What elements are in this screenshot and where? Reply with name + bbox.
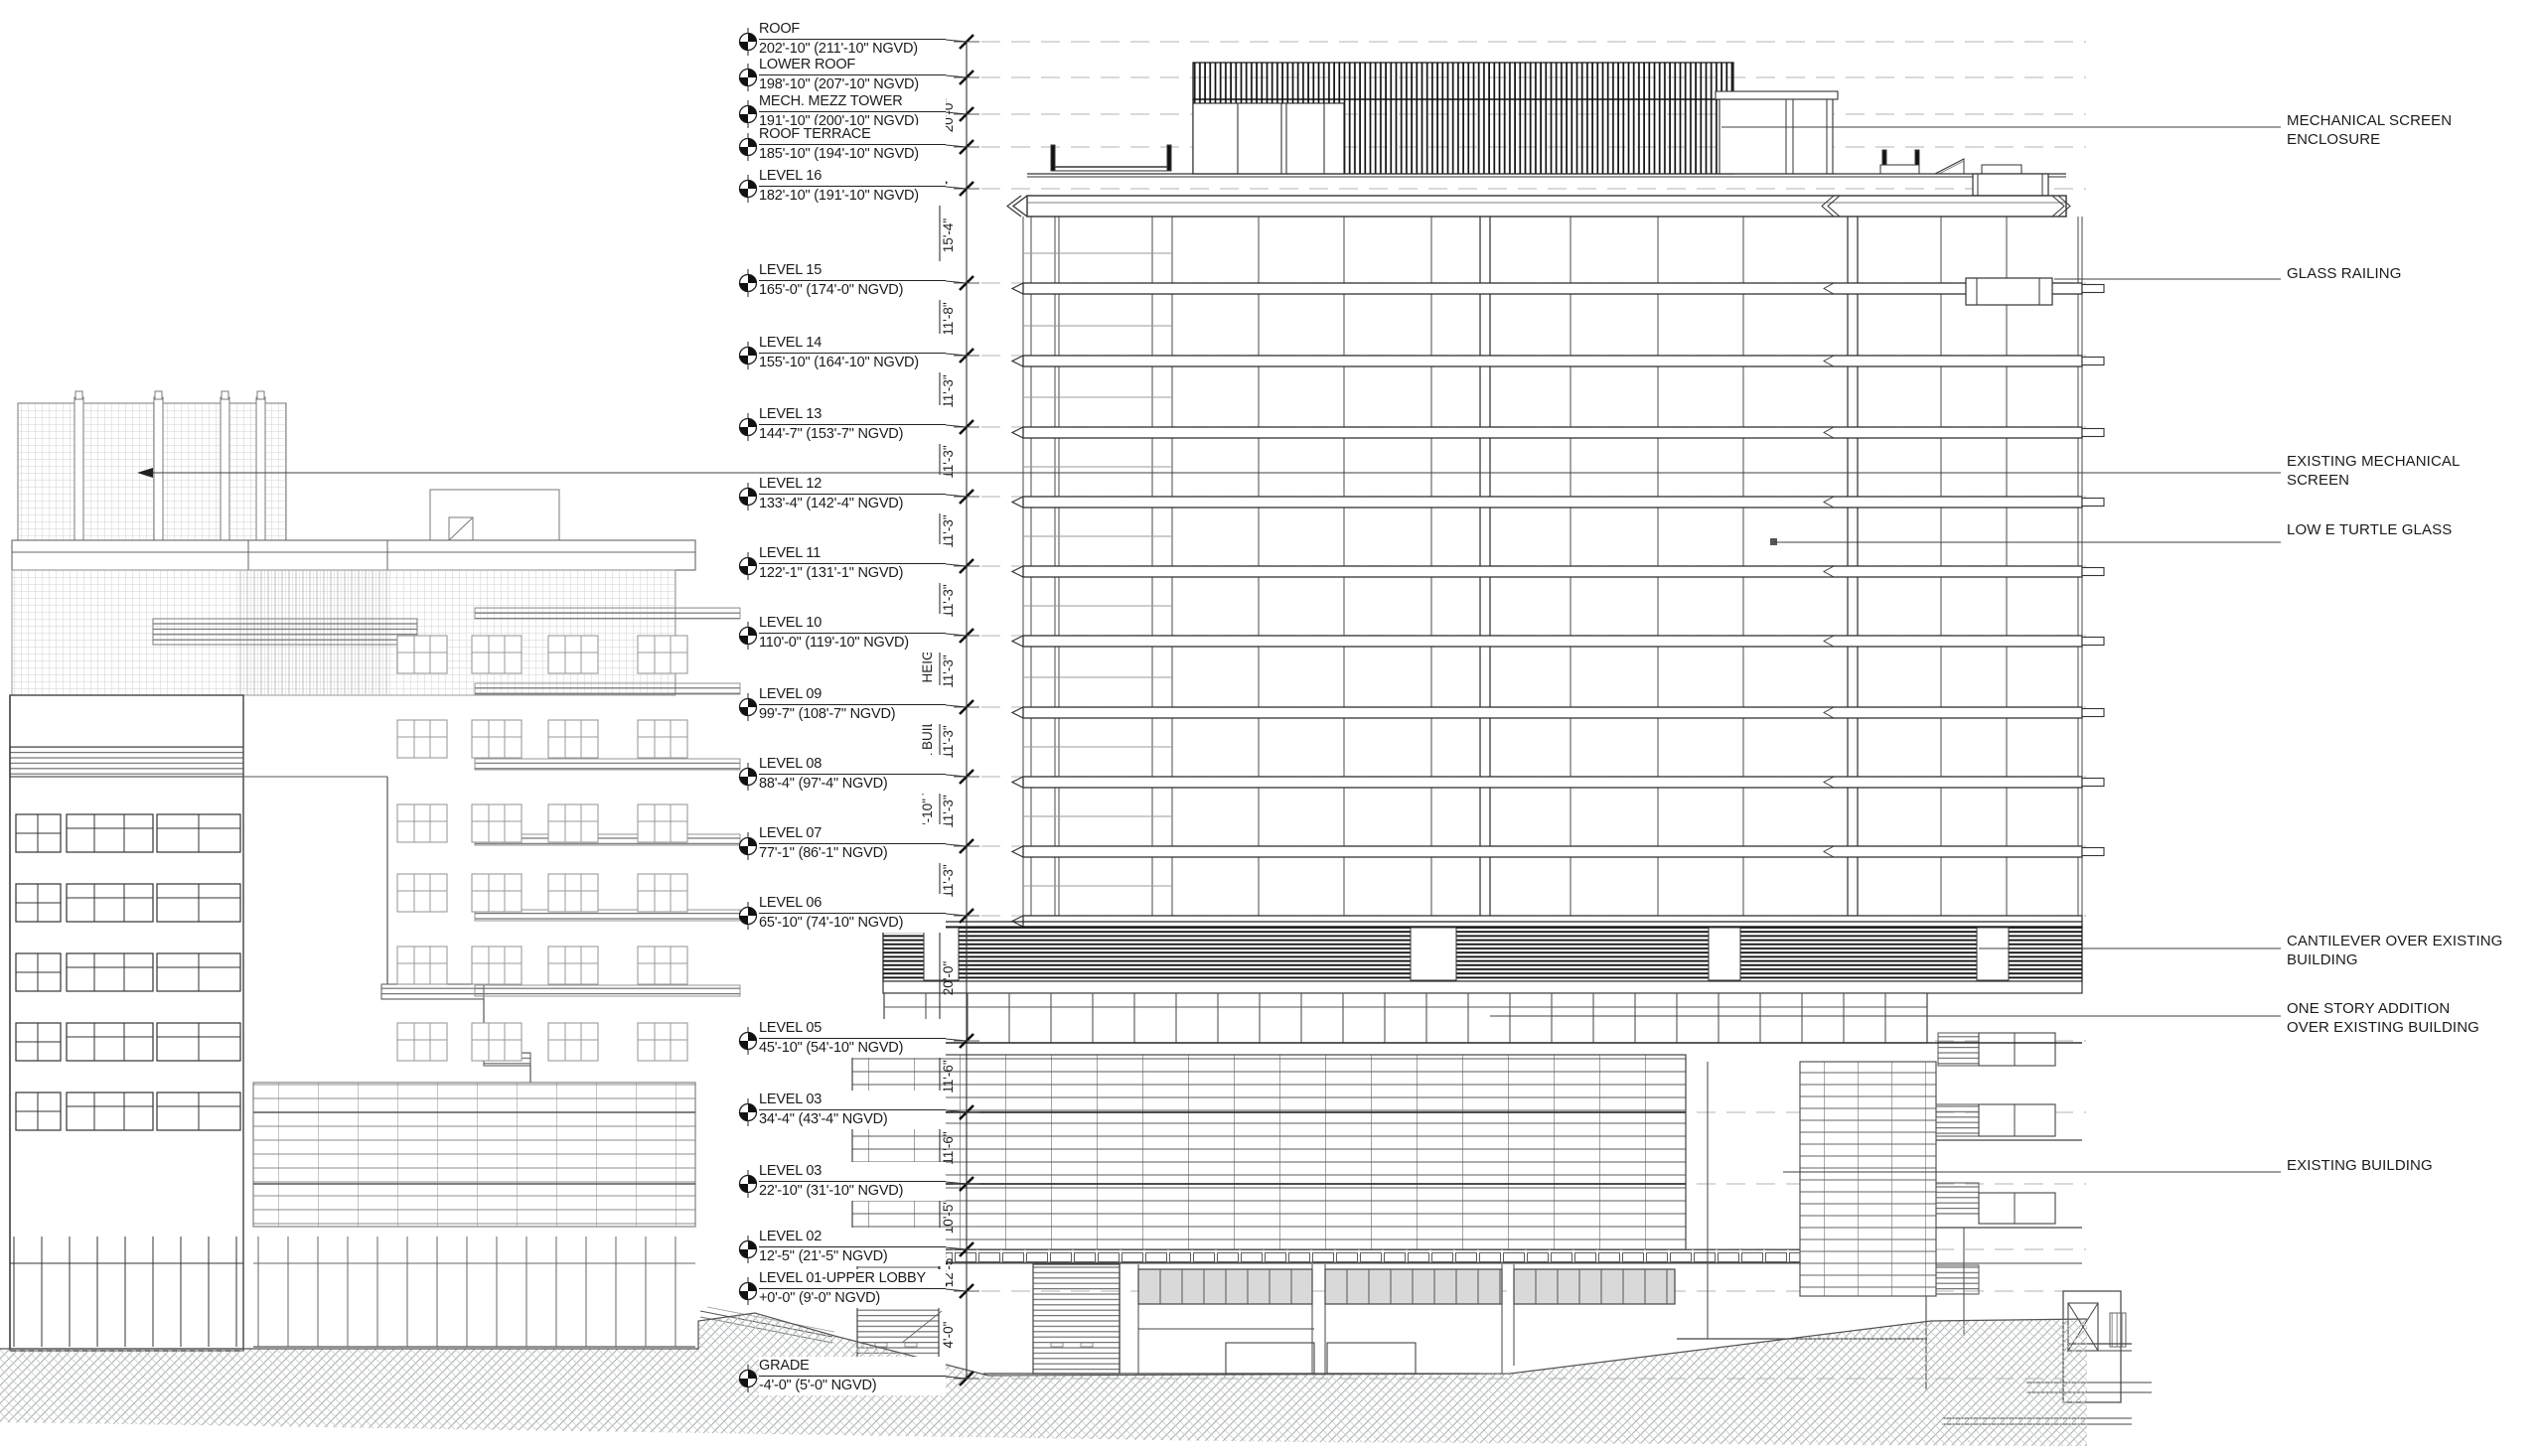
level-elevation: 133'-4" (142'-4" NGVD): [759, 495, 946, 513]
level-label: LEVEL 0212'-5" (21'-5" NGVD): [759, 1228, 946, 1266]
level-label: LEVEL 15165'-0" (174'-0" NGVD): [759, 261, 946, 300]
dimension-text: 11'-3": [941, 864, 956, 898]
level-name: LEVEL 03: [759, 1162, 946, 1182]
level-elevation: 12'-5" (21'-5" NGVD): [759, 1247, 946, 1266]
annotation-line: ENCLOSURE: [2287, 130, 2452, 149]
elevation-drawing: 20'-0"15'-4"11'-8"11'-3"11'-3"11'-3"11'-…: [0, 0, 2543, 1456]
level-label: LOWER ROOF198'-10" (207'-10" NGVD): [759, 56, 946, 94]
level-name: LEVEL 12: [759, 475, 946, 495]
level-elevation: 182'-10" (191'-10" NGVD): [759, 187, 946, 206]
dimension-text: 11'-8": [941, 302, 956, 336]
annotation-line: SCREEN: [2287, 471, 2460, 490]
level-name: ROOF TERRACE: [759, 125, 946, 145]
level-name: LEVEL 03: [759, 1091, 946, 1110]
annotation-label: CANTILEVER OVER EXISTINGBUILDING: [2287, 932, 2502, 969]
level-name: LEVEL 14: [759, 334, 946, 354]
level-label: LEVEL 14155'-10" (164'-10" NGVD): [759, 334, 946, 372]
level-label: LEVEL 0888'-4" (97'-4" NGVD): [759, 755, 946, 794]
level-elevation: 22'-10" (31'-10" NGVD): [759, 1182, 946, 1201]
level-elevation: 122'-1" (131'-1" NGVD): [759, 564, 946, 583]
level-label: LEVEL 16182'-10" (191'-10" NGVD): [759, 167, 946, 206]
dimension-text: 11'-3": [941, 795, 956, 828]
level-name: GRADE: [759, 1357, 946, 1377]
dimension-text: 20'-0": [941, 961, 956, 996]
level-name: LEVEL 02: [759, 1228, 946, 1247]
existing-building-left-drawing: [10, 391, 740, 1351]
annotation-line: EXISTING MECHANICAL: [2287, 452, 2460, 471]
level-name: LEVEL 16: [759, 167, 946, 187]
annotation-line: LOW E TURTLE GLASS: [2287, 520, 2452, 539]
annotation-line: MECHANICAL SCREEN: [2287, 111, 2452, 130]
level-label: ROOF TERRACE185'-10" (194'-10" NGVD): [759, 125, 946, 164]
new-tower-drawing: [1007, 63, 2104, 927]
dimension-text: 11'-6": [941, 1060, 956, 1093]
level-elevation: 65'-10" (74'-10" NGVD): [759, 914, 946, 933]
level-elevation: 185'-10" (194'-10" NGVD): [759, 145, 946, 164]
annotation-label: LOW E TURTLE GLASS: [2287, 520, 2452, 539]
level-name: LEVEL 05: [759, 1019, 946, 1039]
level-name: LEVEL 09: [759, 685, 946, 705]
dimension-text: 11'-3": [941, 655, 956, 688]
annotation-label: ONE STORY ADDITIONOVER EXISTING BUILDING: [2287, 999, 2479, 1037]
level-label: LEVEL 12133'-4" (142'-4" NGVD): [759, 475, 946, 513]
level-label: LEVEL 0322'-10" (31'-10" NGVD): [759, 1162, 946, 1201]
level-elevation: 88'-4" (97'-4" NGVD): [759, 775, 946, 794]
level-name: MECH. MEZZ TOWER: [759, 92, 946, 112]
level-label: LEVEL 0999'-7" (108'-7" NGVD): [759, 685, 946, 724]
level-label: LEVEL 0665'-10" (74'-10" NGVD): [759, 894, 946, 933]
level-name: LEVEL 06: [759, 894, 946, 914]
level-elevation: 144'-7" (153'-7" NGVD): [759, 425, 946, 444]
dimension-text: 4'-0": [941, 1321, 956, 1348]
annotation-line: ONE STORY ADDITION: [2287, 999, 2479, 1018]
annotation-line: CANTILEVER OVER EXISTING: [2287, 932, 2502, 950]
level-label: LEVEL 0777'-1" (86'-1" NGVD): [759, 824, 946, 863]
level-elevation: 155'-10" (164'-10" NGVD): [759, 354, 946, 372]
dimension-text: 11'-3": [941, 514, 956, 548]
dimension-text: 11'-3": [941, 584, 956, 618]
level-label: LEVEL 01-UPPER LOBBY+0'-0" (9'-0" NGVD): [759, 1269, 946, 1308]
level-label: LEVEL 10110'-0" (119'-10" NGVD): [759, 614, 946, 653]
dimension-text: 11'-3": [941, 374, 956, 408]
level-name: LEVEL 01-UPPER LOBBY: [759, 1269, 946, 1289]
annotation-line: GLASS RAILING: [2287, 264, 2402, 283]
elevation-sheet: 20'-0"15'-4"11'-8"11'-3"11'-3"11'-3"11'-…: [0, 0, 2543, 1456]
level-elevation: 77'-1" (86'-1" NGVD): [759, 844, 946, 863]
level-name: LOWER ROOF: [759, 56, 946, 75]
level-elevation: 99'-7" (108'-7" NGVD): [759, 705, 946, 724]
annotation-line: OVER EXISTING BUILDING: [2287, 1018, 2479, 1037]
annotation-label: EXISTING MECHANICALSCREEN: [2287, 452, 2460, 490]
dimension-text: 11'-6": [941, 1131, 956, 1165]
level-label: ROOF202'-10" (211'-10" NGVD): [759, 20, 946, 59]
level-label: LEVEL 11122'-1" (131'-1" NGVD): [759, 544, 946, 583]
annotation-label: GLASS RAILING: [2287, 264, 2402, 283]
annotation-label: MECHANICAL SCREENENCLOSURE: [2287, 111, 2452, 149]
level-label: LEVEL 13144'-7" (153'-7" NGVD): [759, 405, 946, 444]
annotation-label: EXISTING BUILDING: [2287, 1156, 2433, 1175]
level-name: LEVEL 13: [759, 405, 946, 425]
level-elevation: 110'-0" (119'-10" NGVD): [759, 634, 946, 653]
level-label: LEVEL 0545'-10" (54'-10" NGVD): [759, 1019, 946, 1058]
level-elevation: 34'-4" (43'-4" NGVD): [759, 1110, 946, 1129]
dimension-text: 11'-3": [941, 725, 956, 759]
level-name: ROOF: [759, 20, 946, 40]
dimension-text: 15'-4": [941, 218, 956, 253]
dimension-text: 11'-3": [941, 445, 956, 479]
level-label: LEVEL 0334'-4" (43'-4" NGVD): [759, 1091, 946, 1129]
level-name: LEVEL 10: [759, 614, 946, 634]
level-elevation: +0'-0" (9'-0" NGVD): [759, 1289, 946, 1308]
level-name: LEVEL 15: [759, 261, 946, 281]
annotation-line: BUILDING: [2287, 950, 2502, 969]
level-name: LEVEL 08: [759, 755, 946, 775]
level-elevation: 165'-0" (174'-0" NGVD): [759, 281, 946, 300]
total-building-height-dim: 182'-10" TOTAL BUILDING HEIGHT: [920, 633, 935, 848]
level-elevation: 45'-10" (54'-10" NGVD): [759, 1039, 946, 1058]
level-elevation: -4'-0" (5'-0" NGVD): [759, 1377, 946, 1395]
level-name: LEVEL 07: [759, 824, 946, 844]
annotation-line: EXISTING BUILDING: [2287, 1156, 2433, 1175]
level-label: GRADE-4'-0" (5'-0" NGVD): [759, 1357, 946, 1395]
level-name: LEVEL 11: [759, 544, 946, 564]
